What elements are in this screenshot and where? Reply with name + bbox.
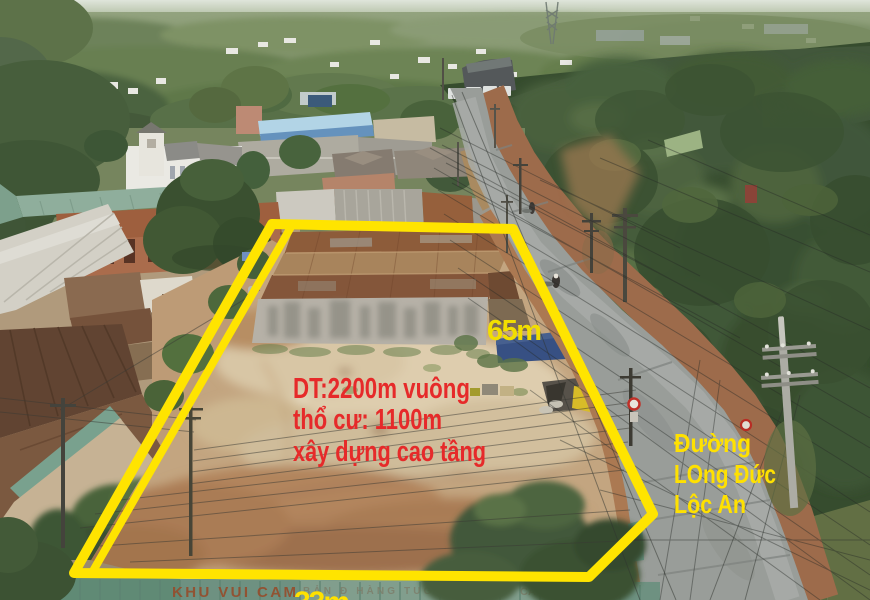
svg-text:Đường: Đường bbox=[674, 428, 751, 458]
svg-text:LOng Đức: LOng Đức bbox=[674, 459, 776, 489]
svg-text:Lộc An: Lộc An bbox=[674, 489, 746, 519]
svg-text:65m: 65m bbox=[487, 315, 542, 347]
svg-text:DT:2200m vuông: DT:2200m vuông bbox=[293, 373, 470, 405]
svg-text:xây dựng cao tầng: xây dựng cao tầng bbox=[293, 436, 486, 468]
svg-text:KHU VUI CAM: KHU VUI CAM bbox=[172, 584, 296, 600]
svg-text:thổ cư: 1100m: thổ cư: 1100m bbox=[293, 404, 442, 436]
svg-text:33m: 33m bbox=[294, 586, 350, 600]
